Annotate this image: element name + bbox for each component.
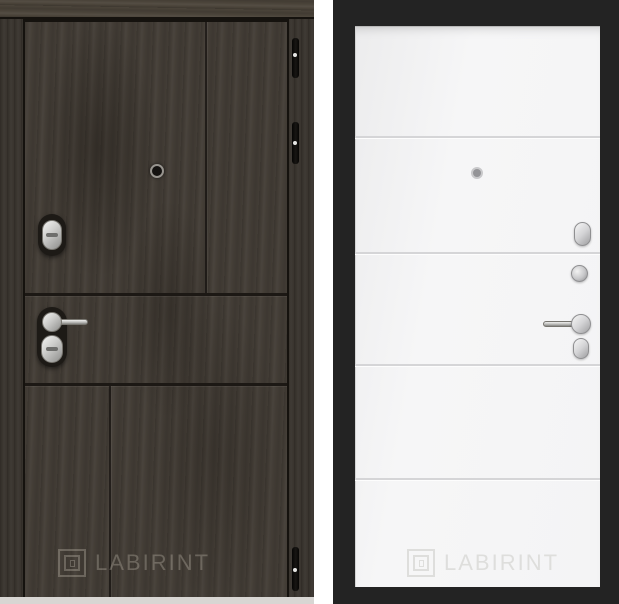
- panel-groove-2: [25, 383, 287, 386]
- door-interior-view: LABIRINT: [333, 0, 619, 604]
- door-leaf-white: LABIRINT: [355, 26, 600, 587]
- panel-groove-3: [355, 364, 600, 366]
- hinge-pin: [293, 141, 297, 145]
- thumbturn-knob-icon: [571, 265, 588, 282]
- panel-groove-1: [25, 293, 287, 296]
- night-latch-escutcheon: [574, 222, 591, 246]
- door-exterior-view: LABIRINT: [0, 0, 314, 604]
- deadbolt-keyhole: [46, 233, 58, 237]
- brand-name: LABIRINT: [444, 549, 559, 577]
- panel-groove-1: [355, 136, 600, 138]
- door-hinge-top: [292, 38, 299, 78]
- door-leaf-dark: [25, 22, 287, 597]
- labirint-logo-icon: [58, 549, 86, 577]
- product-image-two-door-views: LABIRINT LABIRINT: [0, 0, 619, 604]
- door-frame-left: [0, 19, 25, 597]
- brand-name: LABIRINT: [95, 549, 210, 577]
- lever-handle-rose: [42, 312, 62, 332]
- hinge-pin: [293, 568, 297, 572]
- door-frame-right: [287, 19, 314, 597]
- panel-groove-2: [355, 252, 600, 254]
- panel-seam-upper: [205, 22, 207, 293]
- door-hinge-middle: [292, 122, 299, 164]
- key-cylinder-icon: [573, 338, 589, 359]
- leaf-gap-right: [287, 19, 289, 597]
- hinge-pin: [293, 53, 297, 57]
- labirint-logo-icon: [407, 549, 435, 577]
- peephole-icon: [150, 164, 164, 178]
- door-hinge-bottom: [292, 547, 299, 591]
- key-cylinder-slot: [46, 347, 58, 351]
- brand-watermark: LABIRINT: [407, 549, 559, 577]
- peephole-icon: [471, 167, 483, 179]
- door-frame-lintel: [0, 0, 314, 19]
- lever-handle-rose: [571, 314, 591, 334]
- panel-groove-4: [355, 478, 600, 480]
- floor-strip: [0, 597, 314, 604]
- brand-watermark: LABIRINT: [58, 549, 210, 577]
